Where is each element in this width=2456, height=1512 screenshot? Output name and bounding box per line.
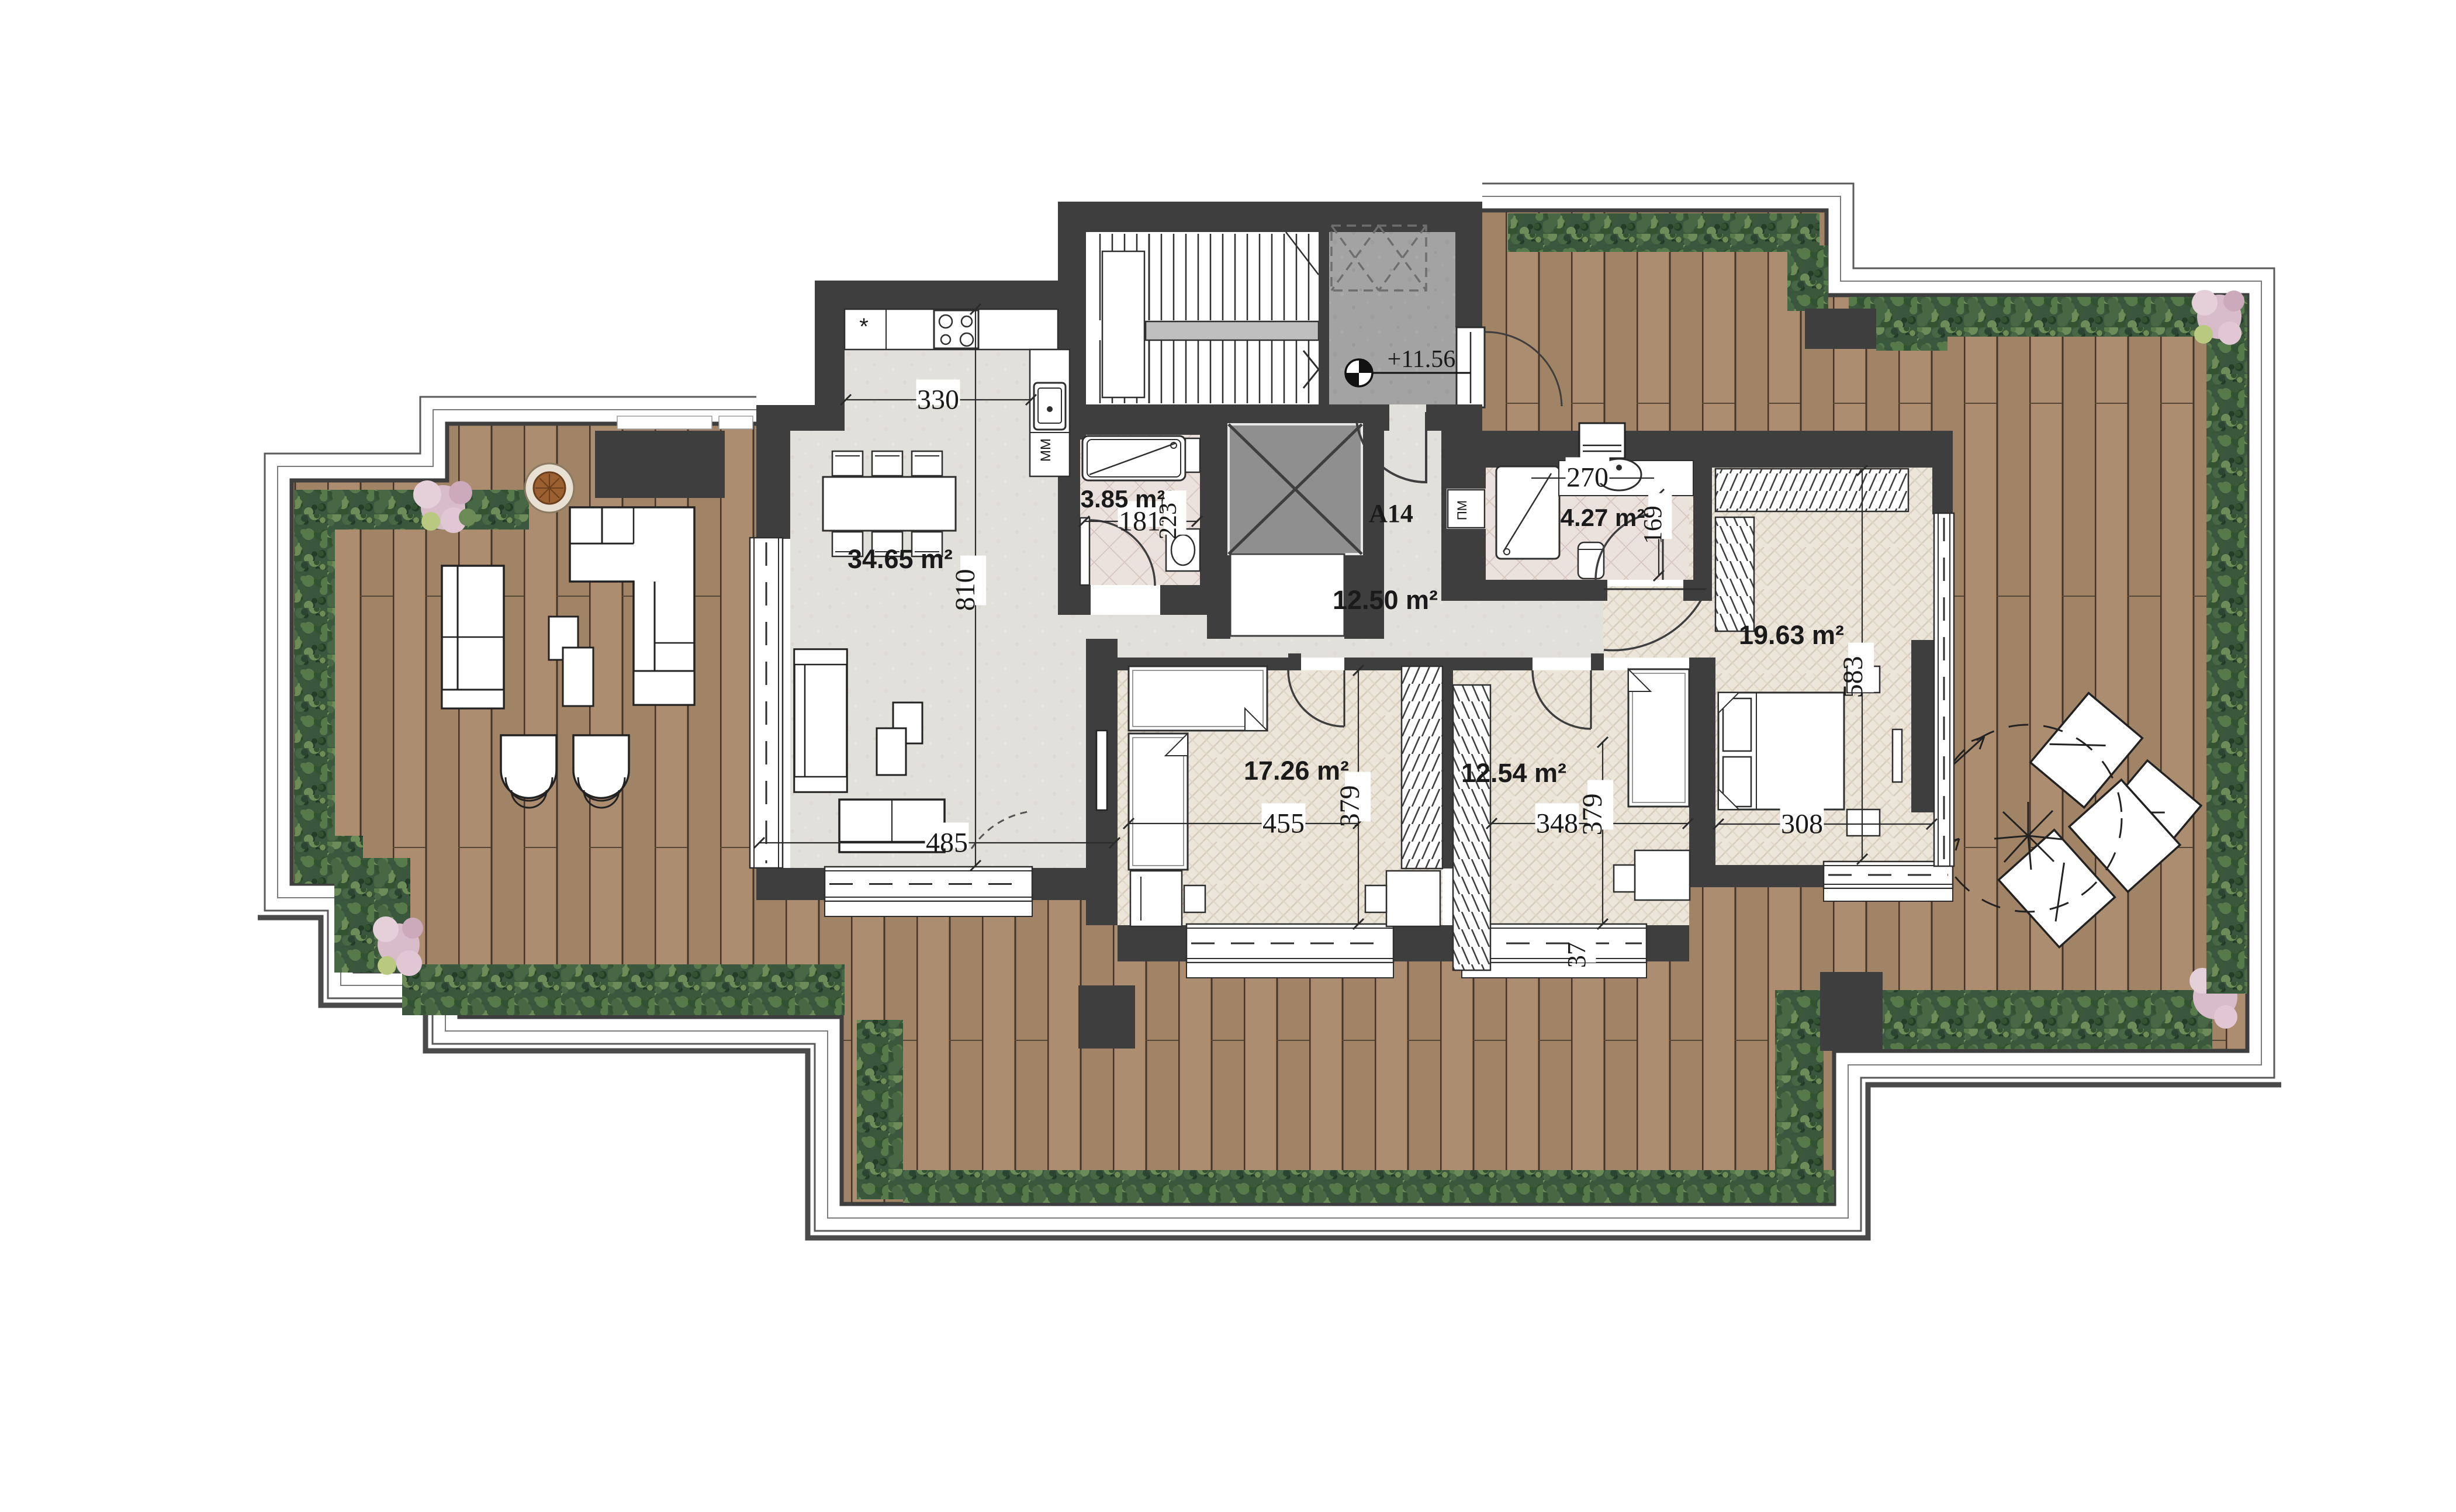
svg-text:455: 455	[1262, 808, 1305, 839]
svg-text:270: 270	[1566, 462, 1608, 493]
svg-text:+11.56: +11.56	[1388, 346, 1456, 373]
svg-text:MM: MM	[1038, 438, 1054, 462]
svg-text:485: 485	[926, 827, 968, 858]
svg-text:19.63 m²: 19.63 m²	[1739, 620, 1844, 650]
svg-text:ПМ: ПМ	[1455, 500, 1469, 520]
svg-text:12.50 m²: 12.50 m²	[1333, 585, 1438, 615]
svg-text:4.27 m²: 4.27 m²	[1561, 504, 1645, 531]
svg-text:379: 379	[1334, 785, 1365, 827]
svg-text:3.85 m²: 3.85 m²	[1081, 485, 1165, 513]
svg-text:379: 379	[1577, 793, 1608, 835]
svg-text:308: 308	[1781, 808, 1823, 839]
svg-text:583: 583	[1838, 656, 1869, 698]
svg-text:810: 810	[950, 569, 981, 611]
svg-text:34.65 m²: 34.65 m²	[848, 544, 953, 574]
svg-text:348: 348	[1536, 808, 1578, 839]
svg-text:A14: A14	[1369, 499, 1413, 528]
svg-text:330: 330	[917, 384, 959, 415]
svg-text:17.26 m²: 17.26 m²	[1244, 756, 1349, 786]
svg-text:12.54 m²: 12.54 m²	[1461, 758, 1566, 788]
svg-text:37: 37	[1562, 942, 1591, 968]
svg-text:*: *	[859, 314, 869, 340]
